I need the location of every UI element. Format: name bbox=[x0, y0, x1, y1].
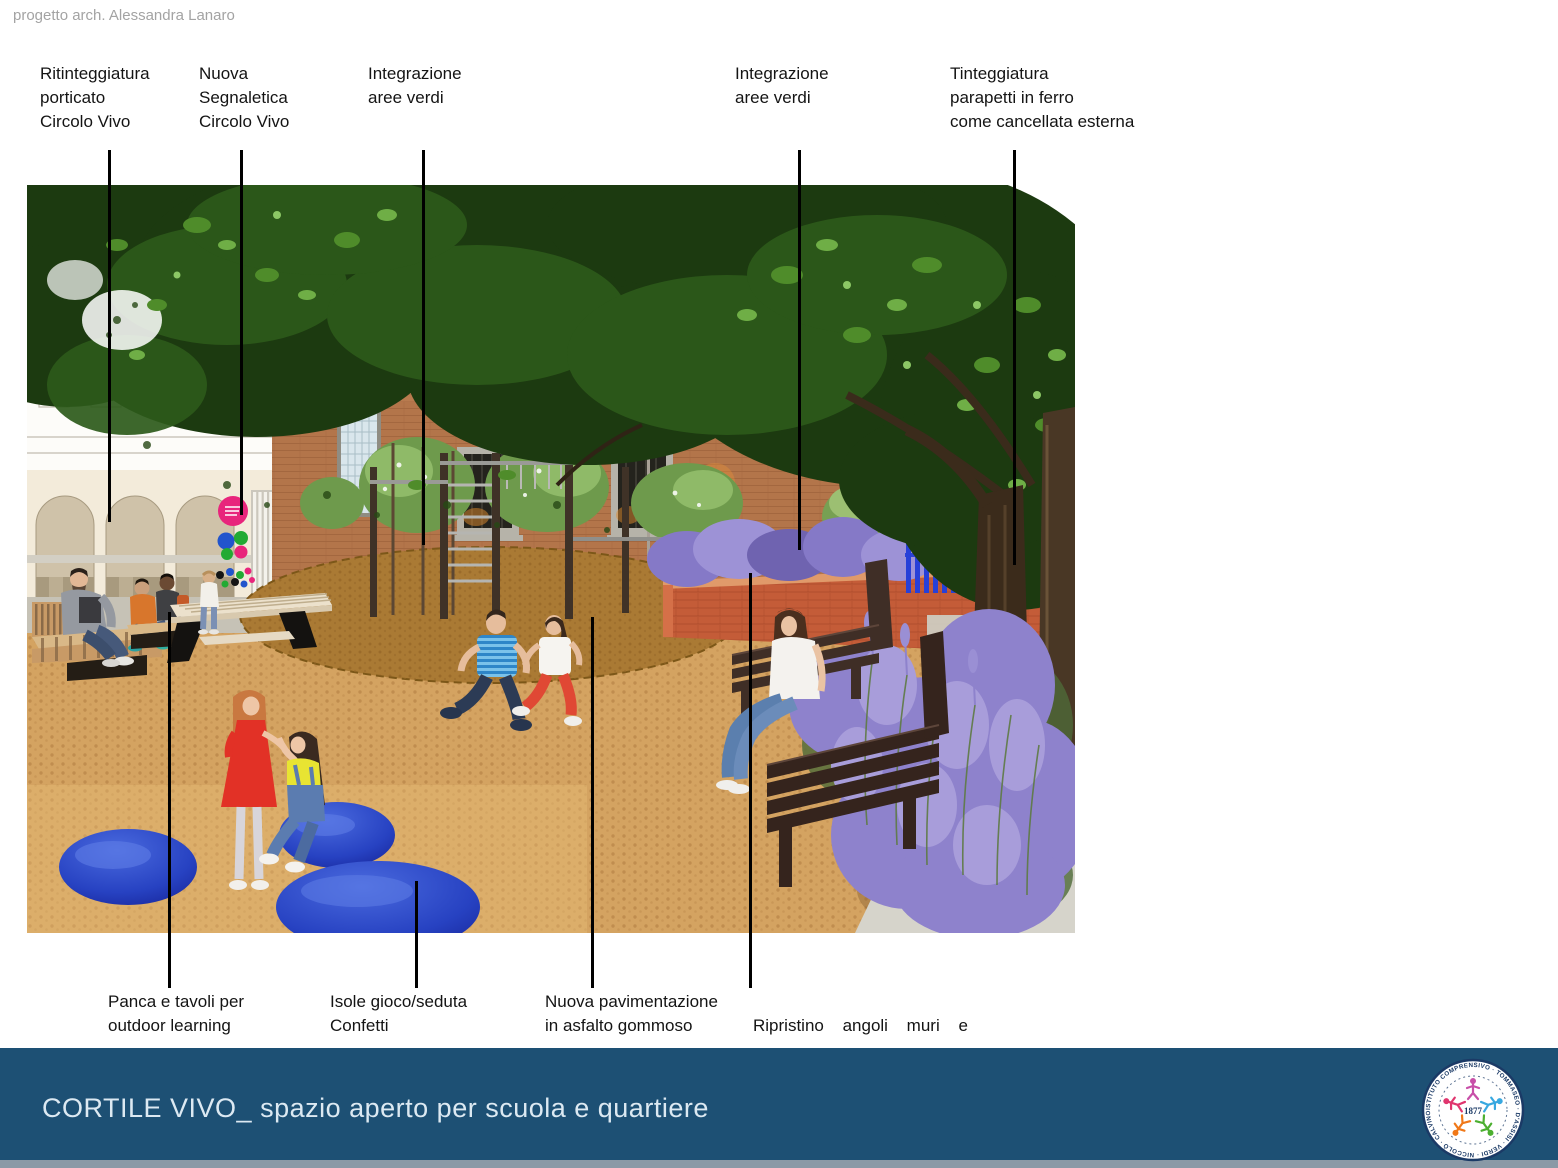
slide-title-sub: spazio aperto per scuola e quartiere bbox=[260, 1093, 709, 1123]
annotation-ritinteggiatura-porticato: Ritinteggiatura porticato Circolo Vivo bbox=[40, 62, 150, 134]
annotation-nuova-segnaletica: Nuova Segnaletica Circolo Vivo bbox=[199, 62, 289, 134]
leader-line-aree-verdi-2 bbox=[798, 150, 801, 550]
slide-title-main: CORTILE VIVO_ bbox=[42, 1093, 252, 1123]
annotation-panca-tavoli: Panca e tavoli per outdoor learning bbox=[108, 990, 244, 1038]
leader-line-ritinteggiatura bbox=[108, 150, 111, 522]
annotation-isole-gioco: Isole gioco/seduta Confetti bbox=[330, 990, 467, 1038]
annotation-nuova-pavimentazione: Nuova pavimentazione in asfalto gommoso bbox=[545, 990, 718, 1038]
slide-title: CORTILE VIVO_spazio aperto per scuola e … bbox=[42, 1093, 709, 1124]
leader-line-panca bbox=[168, 612, 171, 988]
annotation-tinteggiatura-parapetti: Tinteggiatura parapetti in ferro come ca… bbox=[950, 62, 1134, 134]
leader-line-isole bbox=[415, 881, 418, 988]
leader-line-segnaletica bbox=[240, 150, 243, 515]
logo-year: 1877 bbox=[1464, 1106, 1483, 1116]
courtyard-rendering bbox=[27, 185, 1075, 933]
footer-bottom-strip bbox=[0, 1160, 1558, 1168]
leader-line-parapetti bbox=[1013, 150, 1016, 565]
project-credit: progetto arch. Alessandra Lanaro bbox=[13, 7, 235, 24]
leader-line-ripristino bbox=[749, 573, 752, 988]
leader-line-pavimentazione bbox=[591, 617, 594, 988]
leader-line-aree-verdi-1 bbox=[422, 150, 425, 545]
school-logo: ISTITUTO COMPRENSIVO · TOMMASEO · D'ASSI… bbox=[1421, 1058, 1525, 1162]
annotation-integrazione-aree-verdi-2: Integrazione aree verdi bbox=[735, 62, 829, 110]
presentation-slide: progetto arch. Alessandra Lanaro Ritinte… bbox=[0, 0, 1558, 1168]
annotation-ripristino-line1: Ripristino angoli muri e bbox=[753, 1014, 968, 1038]
annotation-integrazione-aree-verdi-1: Integrazione aree verdi bbox=[368, 62, 462, 110]
